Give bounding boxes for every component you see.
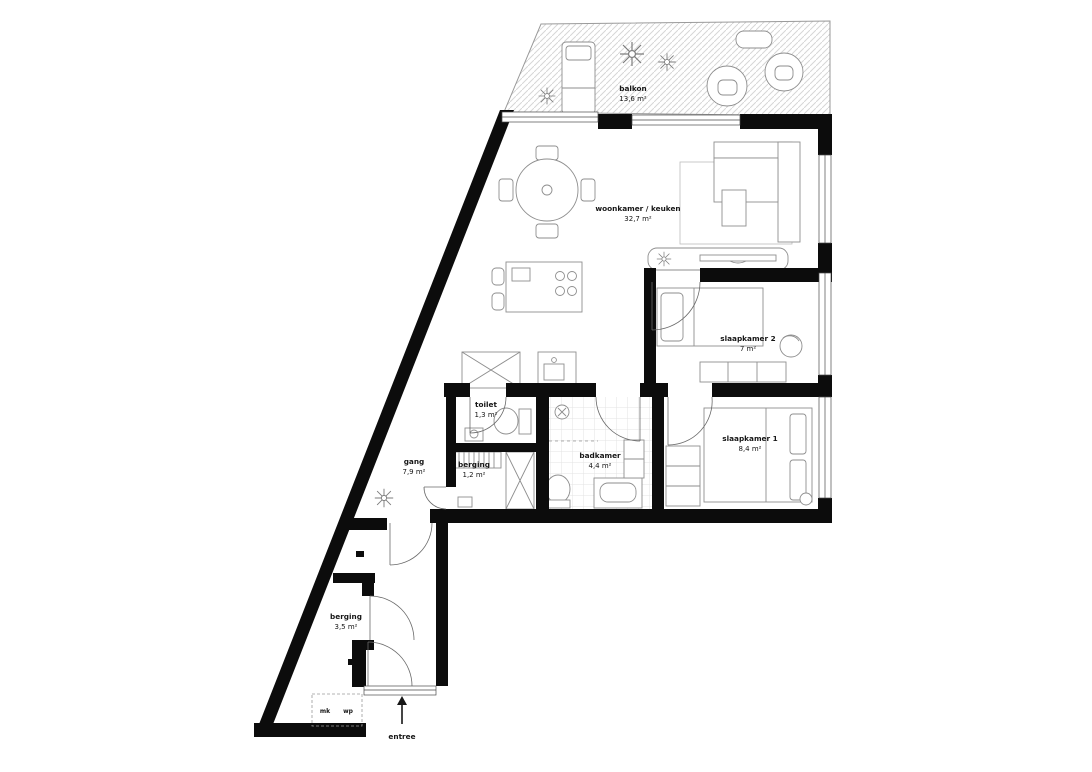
bedroom-1 xyxy=(666,408,812,506)
room-label-berging-klein: berging xyxy=(458,460,490,469)
door-storage-small xyxy=(424,487,446,509)
sliding-door-window xyxy=(632,115,740,125)
room-label-woonkamer: woonkamer / keuken xyxy=(595,204,680,213)
wall-segment xyxy=(446,443,536,452)
fixture-icon xyxy=(458,497,472,507)
room-area-woonkamer: 32,7 m² xyxy=(624,215,652,223)
wall-segment xyxy=(712,383,832,397)
wall-segment xyxy=(362,583,374,596)
room-label-gang: gang xyxy=(404,457,425,466)
entree-label: entree xyxy=(388,732,415,741)
dresser-icon xyxy=(700,362,786,382)
lounge-chair-icon xyxy=(562,42,595,114)
door-storage-large xyxy=(370,596,414,640)
bathtub-icon xyxy=(594,478,642,508)
wall-segment xyxy=(436,523,448,686)
coffee-table-icon xyxy=(736,31,772,48)
wall-segment xyxy=(446,390,456,443)
floor-plan-svg: mk wp entree balkon 13,6 m² woonkamer / … xyxy=(0,0,1092,772)
entrance-threshold xyxy=(364,686,436,695)
plant-icon xyxy=(657,252,671,266)
dining-table-icon xyxy=(499,146,595,238)
window xyxy=(819,273,831,375)
wall-segment xyxy=(652,397,664,509)
chair-icon xyxy=(780,335,802,357)
room-area-berging-klein: 1,2 m² xyxy=(463,471,486,479)
door-closet-corridor xyxy=(390,523,432,565)
meter-cabinet-box: mk wp xyxy=(312,694,362,726)
closet-x-icon xyxy=(506,452,534,509)
wall-segment xyxy=(352,640,374,650)
room-label-slaapkamer1: slaapkamer 1 xyxy=(722,434,777,443)
armchair-icon xyxy=(707,66,747,106)
wall-segment xyxy=(349,518,387,530)
wardrobe-icon xyxy=(666,446,700,506)
wall-segment xyxy=(333,573,375,583)
room-area-badkamer: 4,4 m² xyxy=(589,462,612,470)
plant-icon xyxy=(620,42,644,66)
wall-segment xyxy=(640,383,668,397)
mk-label: mk xyxy=(320,708,331,715)
room-area-toilet: 1,3 m² xyxy=(475,411,498,419)
wall-segment xyxy=(506,383,596,397)
switch-mark xyxy=(356,551,364,557)
diagonal-exterior-wall xyxy=(254,110,514,737)
window xyxy=(819,397,831,498)
room-area-balkon: 13,6 m² xyxy=(619,95,647,103)
wall-segment xyxy=(352,650,366,687)
wall-segment xyxy=(446,452,456,487)
entrance-arrow-icon xyxy=(397,696,407,724)
sink-icon xyxy=(465,428,483,441)
wardrobe-x-icon xyxy=(462,352,520,388)
balcony xyxy=(504,21,830,116)
bed-double-icon xyxy=(704,408,812,502)
shower-icon xyxy=(555,405,569,419)
room-label-slaapkamer2: slaapkamer 2 xyxy=(720,334,775,343)
plant-icon xyxy=(539,88,556,105)
stool-icon xyxy=(800,493,812,505)
cabinet-icon xyxy=(624,440,644,478)
toilet-icon xyxy=(494,408,531,434)
room-label-badkamer: badkamer xyxy=(579,451,621,460)
washbasin-unit-icon xyxy=(538,352,576,388)
door-entrance xyxy=(368,642,412,686)
room-area-slaapkamer1: 8,4 m² xyxy=(739,445,762,453)
wp-label: wp xyxy=(343,708,354,715)
room-area-berging-groot: 3,5 m² xyxy=(335,623,358,631)
armchair-icon xyxy=(765,53,803,91)
room-area-gang: 7,9 m² xyxy=(403,468,426,476)
room-label-toilet: toilet xyxy=(475,400,497,409)
wall-segment xyxy=(430,509,832,523)
room-label-balkon: balkon xyxy=(619,84,647,93)
sofa-icon xyxy=(680,142,800,244)
plant-icon xyxy=(658,53,676,71)
wall-segment xyxy=(598,114,632,129)
toilet-icon xyxy=(546,475,570,508)
room-area-slaapkamer2: 7 m² xyxy=(740,345,756,353)
wall-segment xyxy=(818,114,832,155)
plant-icon xyxy=(375,489,393,507)
wall-segment xyxy=(536,390,549,509)
switch-mark xyxy=(348,659,356,665)
window xyxy=(819,155,831,243)
window xyxy=(502,112,598,122)
wall-segment xyxy=(700,268,832,282)
tv-cabinet-icon xyxy=(648,248,788,270)
floor-plan-page: mk wp entree balkon 13,6 m² woonkamer / … xyxy=(0,0,1092,772)
wall-segment xyxy=(644,268,656,385)
kitchen-island-icon xyxy=(492,262,582,312)
room-label-berging-groot: berging xyxy=(330,612,362,621)
